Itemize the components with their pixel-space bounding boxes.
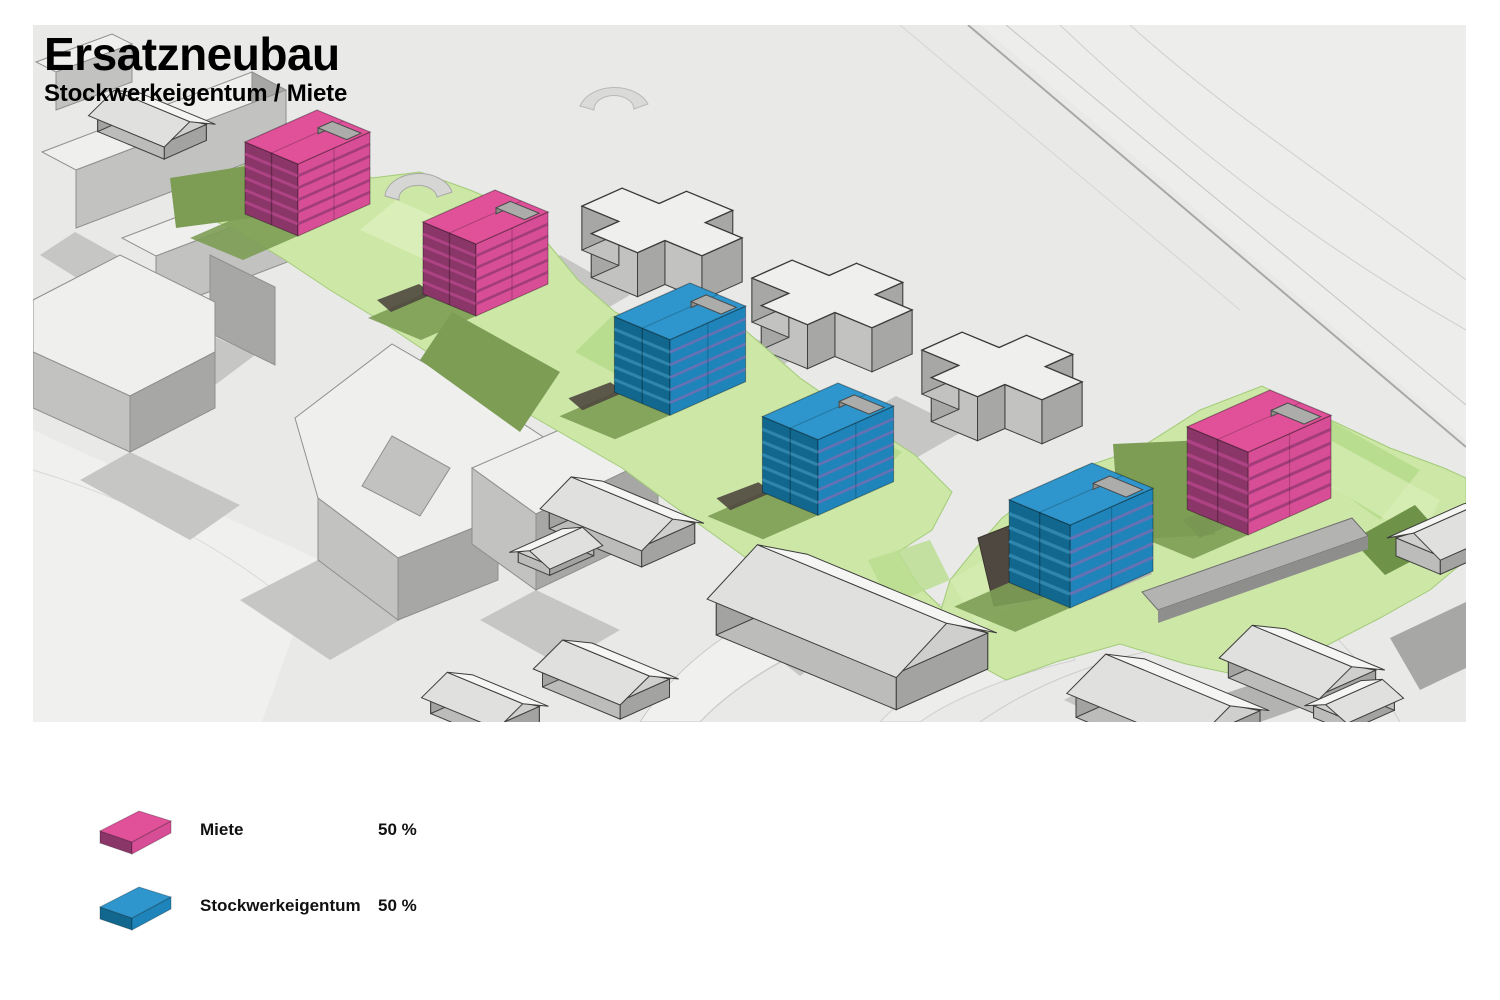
context-building-cross-3 (922, 332, 1082, 444)
legend-swatch-stockwerkeigentum (92, 878, 178, 934)
legend-item-stockwerkeigentum: Stockwerkeigentum 50 % (92, 874, 417, 938)
title-block: Ersatzneubau Stockwerkeigentum / Miete (44, 30, 347, 108)
legend-value-miete: 50 % (378, 820, 417, 840)
site-render-3d: Ersatzneubau Stockwerkeigentum / Miete (0, 0, 1500, 722)
legend-value-stockwerkeigentum: 50 % (378, 896, 417, 916)
legend-item-miete: Miete 50 % (92, 798, 417, 862)
context-building-cross-1 (582, 188, 742, 300)
legend-label-miete: Miete (200, 820, 378, 840)
page-title: Ersatzneubau (44, 30, 347, 78)
site-plan-svg (0, 0, 1500, 722)
legend: Miete 50 % Stockwerkeigentum 50 % (92, 798, 417, 950)
page-subtitle: Stockwerkeigentum / Miete (44, 80, 347, 108)
legend-label-stockwerkeigentum: Stockwerkeigentum (200, 896, 378, 916)
legend-swatch-miete (92, 802, 178, 858)
context-building-cross-2 (752, 260, 912, 372)
